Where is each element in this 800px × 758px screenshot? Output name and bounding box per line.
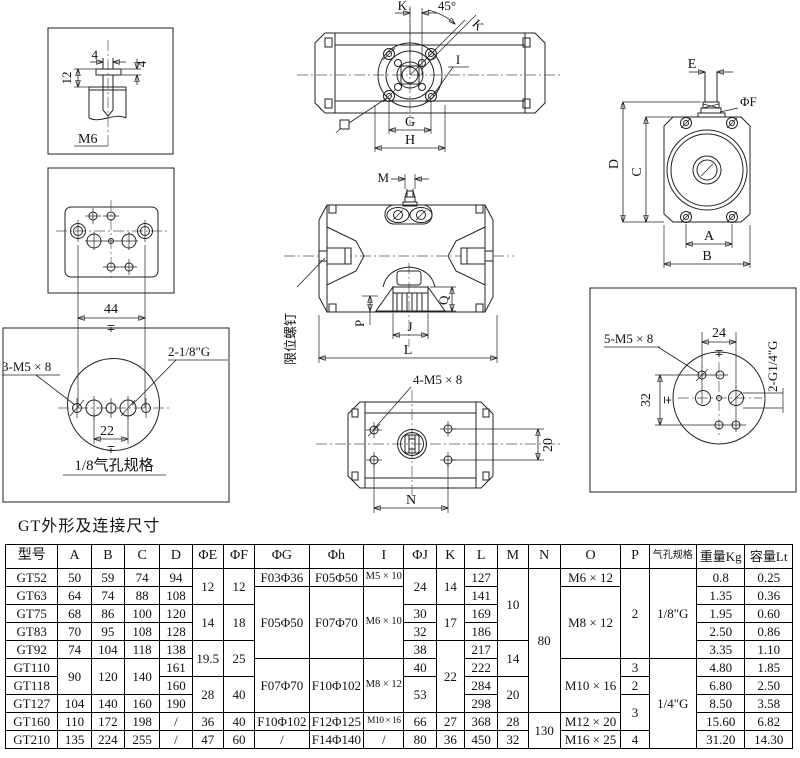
table-cell: M6 × 12 xyxy=(560,569,621,587)
angle-45: 45° K xyxy=(410,0,487,75)
table-cell: 47 xyxy=(192,731,223,749)
table-cell: 128 xyxy=(160,623,192,641)
table-cell: 298 xyxy=(464,695,497,713)
table-cell: 12 xyxy=(192,569,223,605)
table-body: GT52505974941212F03Φ36F05Φ50M5 × 1024141… xyxy=(6,569,793,749)
table-cell: M10 × 16 xyxy=(560,659,621,713)
table-cell: 3.58 xyxy=(745,695,793,713)
table-cell: F14Φ140 xyxy=(309,731,363,749)
table-cell: 104 xyxy=(58,695,91,713)
table-row: GT11090120140161F07Φ70F10Φ102M8 × 124022… xyxy=(6,659,793,677)
dim-label: Q xyxy=(436,295,451,305)
table-cell: F10Φ102 xyxy=(309,659,363,713)
table-cell: F10Φ102 xyxy=(255,713,309,731)
column-header: M xyxy=(498,545,528,569)
table-cell: 40 xyxy=(223,677,254,713)
table-cell: 8.50 xyxy=(697,695,745,713)
table-cell: 53 xyxy=(404,677,436,713)
top-air-ports xyxy=(385,205,432,224)
tolerance-symbol: ∓ xyxy=(662,395,674,404)
screw-label: 4-M5 × 8 xyxy=(413,372,462,387)
table-cell: F07Φ70 xyxy=(255,659,309,713)
dim-label: P xyxy=(352,320,367,327)
table-cell: 140 xyxy=(125,659,160,695)
dim-label: ΦF xyxy=(740,94,757,109)
tolerance-symbol: ∓ xyxy=(106,444,115,456)
table-cell: 88 xyxy=(125,587,160,605)
dim-22: 22 ∓ xyxy=(94,418,128,456)
table-cell: 80 xyxy=(404,731,436,749)
table-cell: 186 xyxy=(464,623,497,641)
table-cell: 20 xyxy=(498,677,528,713)
table-cell: 31.20 xyxy=(697,731,745,749)
body-outline xyxy=(664,117,750,223)
table-cell: 4.80 xyxy=(697,659,745,677)
actuator-front-view-drawing: M 限位螺钉 xyxy=(278,165,568,370)
table-cell: 161 xyxy=(160,659,192,677)
column-header: P xyxy=(621,545,649,569)
table-cell: F12Φ125 xyxy=(309,713,363,731)
dim-label: G xyxy=(405,115,415,130)
table-cell: 108 xyxy=(160,587,192,605)
table-cell: 74 xyxy=(91,587,124,605)
table-cell: / xyxy=(255,731,309,749)
table-cell: 224 xyxy=(91,731,124,749)
table-cell: F07Φ70 xyxy=(309,587,363,659)
table-cell: 2.50 xyxy=(745,677,793,695)
port-label: 2-1/8"G xyxy=(168,344,210,359)
limit-screw-label: 限位螺钉 xyxy=(283,313,298,365)
table-cell: 160 xyxy=(125,695,160,713)
dim-j: J xyxy=(393,313,428,339)
table-cell: 1/4"G xyxy=(649,659,696,749)
table-cell: 190 xyxy=(160,695,192,713)
tolerance-symbol: ∓ xyxy=(106,323,115,335)
table-cell: 6.80 xyxy=(697,677,745,695)
dim-label: C xyxy=(630,167,645,176)
dim-label: J xyxy=(407,319,412,334)
table-cell: 32 xyxy=(498,731,528,749)
table-cell: 3 xyxy=(621,695,649,731)
table-cell: F03Φ36 xyxy=(255,569,309,587)
dim-label: N xyxy=(406,493,416,508)
tolerance-symbol: ∓ xyxy=(714,348,723,360)
table-cell: 140 xyxy=(91,695,124,713)
column-header: K xyxy=(436,545,464,569)
table-cell: 74 xyxy=(125,569,160,587)
table-cell: 3 xyxy=(621,659,649,677)
table-cell: 40 xyxy=(223,713,254,731)
dim-label: K xyxy=(398,0,408,13)
table-cell: 50 xyxy=(58,569,91,587)
port-callout-g14: 2-G1/4"G xyxy=(743,340,783,413)
port-circle-14-drawing: 5-M5 × 8 24 ∓ 32 ∓ 2-G1/4"G xyxy=(580,280,800,508)
screw-callout-3m5: 3-M5 × 8 xyxy=(2,359,75,405)
table-cell: 38 xyxy=(404,641,436,659)
table-cell: 198 xyxy=(125,713,160,731)
dim-label: 22 xyxy=(100,424,114,439)
table-cell: 22 xyxy=(436,641,464,713)
actuator-bottom-view-drawing: 4-M5 × 8 20 N xyxy=(316,368,566,518)
table-cell: 68 xyxy=(58,605,91,623)
plate-box-border xyxy=(48,168,174,293)
table-cell: 108 xyxy=(125,623,160,641)
table-cell: 130 xyxy=(528,713,560,749)
dim-label: H xyxy=(405,133,415,148)
table-cell: 4 xyxy=(621,731,649,749)
table-cell: 94 xyxy=(160,569,192,587)
table-cell: 36 xyxy=(436,731,464,749)
table-cell: 1/8"G xyxy=(649,569,696,659)
table-cell: M5 × 10 xyxy=(364,569,404,587)
table-cell: 12 xyxy=(223,569,254,605)
dim-20: 20 xyxy=(452,429,556,460)
column-header: ΦF xyxy=(223,545,254,569)
table-cell: 36 xyxy=(192,713,223,731)
top-nipple xyxy=(403,189,417,206)
model-cell: GT160 xyxy=(6,713,58,731)
dim-label: 20 xyxy=(541,438,556,452)
table-cell: 24 xyxy=(404,569,436,605)
model-cell: GT210 xyxy=(6,731,58,749)
table-cell: 368 xyxy=(464,713,497,731)
column-header: ΦE xyxy=(192,545,223,569)
table-cell: 15.60 xyxy=(697,713,745,731)
column-header: A xyxy=(58,545,91,569)
table-cell: M12 × 20 xyxy=(560,713,621,731)
limit-screw-right xyxy=(448,227,493,285)
column-header: Φh xyxy=(309,545,363,569)
model-cell: GT118 xyxy=(6,677,58,695)
caption-text: 1/8气孔规格 xyxy=(74,457,153,474)
table-cell: 120 xyxy=(160,605,192,623)
column-header: O xyxy=(560,545,621,569)
model-cell: GT83 xyxy=(6,623,58,641)
datasheet-page: 4 4 12 M6 xyxy=(0,0,800,758)
column-header: B xyxy=(91,545,124,569)
table-cell: 14 xyxy=(436,569,464,605)
table-cell: 169 xyxy=(464,605,497,623)
dim-label: 24 xyxy=(712,326,726,341)
table-cell: 25 xyxy=(223,641,254,677)
table-cell: 160 xyxy=(160,677,192,695)
port-circle-face xyxy=(673,352,765,444)
screw-label: 5-M5 × 8 xyxy=(604,331,653,346)
table-cell: 32 xyxy=(404,623,436,641)
table-cell: 3.35 xyxy=(697,641,745,659)
table-cell: 255 xyxy=(125,731,160,749)
table-cell: 10 xyxy=(498,569,528,641)
angle-label: 45° xyxy=(438,0,456,13)
dim-label: L xyxy=(404,343,413,358)
table-cell: 127 xyxy=(464,569,497,587)
table-cell: M6 × 10 xyxy=(364,587,404,659)
table-cell: M16 × 25 xyxy=(560,731,621,749)
dim-a: A xyxy=(686,224,732,248)
dim-depth: 12 xyxy=(59,69,96,87)
table-cell: 27 xyxy=(436,713,464,731)
table-cell: 95 xyxy=(91,623,124,641)
model-cell: GT63 xyxy=(6,587,58,605)
dim-label: B xyxy=(702,249,711,264)
table-cell: 172 xyxy=(91,713,124,731)
port-label: 2-G1/4"G xyxy=(765,340,780,392)
model-cell: GT52 xyxy=(6,569,58,587)
dim-label: A xyxy=(704,229,715,244)
table-cell: 138 xyxy=(160,641,192,659)
column-header: ΦJ xyxy=(404,545,436,569)
column-header: D xyxy=(160,545,192,569)
dim-m: M xyxy=(377,170,429,189)
dim-label: 44 xyxy=(104,302,118,317)
table-cell: 118 xyxy=(125,641,160,659)
actuator-top-view-drawing: K 45° K I G H xyxy=(295,0,565,168)
table-cell: 0.60 xyxy=(745,605,793,623)
table-cell: 17 xyxy=(436,605,464,641)
table-cell: 18 xyxy=(223,605,254,641)
dim-label: 32 xyxy=(639,393,654,407)
detail-border xyxy=(48,28,173,154)
actuator-end-view-drawing: E ΦF D C xyxy=(593,48,800,288)
table-cell: 135 xyxy=(58,731,91,749)
table-cell: 120 xyxy=(91,659,124,695)
table-header-row: 型号ABCDΦEΦFΦGΦhIΦJKLMNOP气孔规格重量Kg容量Lt xyxy=(6,545,793,569)
model-cell: GT75 xyxy=(6,605,58,623)
dim-label: D xyxy=(607,159,622,169)
table-cell: 40 xyxy=(404,659,436,677)
dim-44: 44 ∓ xyxy=(78,245,145,408)
mounting-holes xyxy=(366,421,456,468)
column-header: 气孔规格 xyxy=(649,545,696,569)
model-cell: GT127 xyxy=(6,695,58,713)
table-cell: 217 xyxy=(464,641,497,659)
table-cell: 90 xyxy=(58,659,91,695)
dim-label: 4 xyxy=(92,47,99,62)
thread-callout: M6 xyxy=(74,132,108,147)
model-cell: GT110 xyxy=(6,659,58,677)
table-cell: 6.82 xyxy=(745,713,793,731)
column-header: 型号 xyxy=(6,545,58,569)
table-cell: 19.5 xyxy=(192,641,223,677)
table-cell: M10 × 16 xyxy=(364,713,404,731)
table-cell: 70 xyxy=(58,623,91,641)
table-cell: 141 xyxy=(464,587,497,605)
table-cell: 30 xyxy=(404,605,436,623)
table-cell: / xyxy=(160,713,192,731)
screw-callout-4m5: 4-M5 × 8 xyxy=(374,372,462,429)
table-cell: 1.35 xyxy=(697,587,745,605)
table-cell: 0.86 xyxy=(745,623,793,641)
table-cell: F05Φ50 xyxy=(255,587,309,659)
table-cell: 64 xyxy=(58,587,91,605)
port-spec-caption: 1/8气孔规格 xyxy=(63,457,166,475)
column-header: C xyxy=(125,545,160,569)
table-cell: 2 xyxy=(621,677,649,695)
table-cell: 28 xyxy=(498,713,528,731)
table-cell: 60 xyxy=(223,731,254,749)
dim-label: 12 xyxy=(59,72,74,85)
table-cell: 110 xyxy=(58,713,91,731)
table-cell: 284 xyxy=(464,677,497,695)
column-header: ΦG xyxy=(255,545,309,569)
dim-label: E xyxy=(688,57,697,72)
thread-label: M6 xyxy=(78,132,97,147)
dim-d: D xyxy=(607,102,701,222)
spec-table: 型号ABCDΦEΦFΦGΦhIΦJKLMNOP气孔规格重量Kg容量Lt GT52… xyxy=(5,544,793,749)
mounting-plate-face xyxy=(56,200,168,278)
bottom-shaft-assembly xyxy=(376,267,445,311)
table-cell: 80 xyxy=(528,569,560,713)
port-callout-18g: 2-1/8"G xyxy=(132,344,228,405)
dim-tab-height: 4 xyxy=(121,59,149,85)
column-header: 重量Kg xyxy=(697,545,745,569)
table-cell: 0.36 xyxy=(745,587,793,605)
stem-and-nut xyxy=(698,72,725,117)
table-row: GT52505974941212F03Φ36F05Φ50M5 × 1024141… xyxy=(6,569,793,587)
screw-label: 3-M5 × 8 xyxy=(2,359,51,374)
table-cell: 66 xyxy=(404,713,436,731)
table-cell: / xyxy=(364,731,404,749)
table-cell: / xyxy=(160,731,192,749)
datum-flag xyxy=(336,98,387,133)
column-header: L xyxy=(464,545,497,569)
mounting-plate-and-port-drawing: 44 ∓ 3-M5 × 8 2-1/8"G xyxy=(0,160,240,512)
table-cell: 14.30 xyxy=(745,731,793,749)
table-cell: 14 xyxy=(498,641,528,677)
dim-label: M xyxy=(377,170,389,185)
table-cell: 222 xyxy=(464,659,497,677)
dim-f-callout: ΦF xyxy=(720,94,757,112)
body-outline xyxy=(348,402,493,488)
table-cell: 14 xyxy=(192,605,223,641)
model-cell: GT92 xyxy=(6,641,58,659)
shaft-slot-detail-drawing: 4 4 12 M6 xyxy=(40,18,235,158)
table-cell: 2 xyxy=(621,569,649,659)
table-cell: M8 × 12 xyxy=(364,659,404,713)
table-cell: 1.95 xyxy=(697,605,745,623)
limit-screw-left xyxy=(319,227,364,285)
table-cell: 1.10 xyxy=(745,641,793,659)
table-cell: 450 xyxy=(464,731,497,749)
dim-label: 4 xyxy=(134,60,149,67)
table-cell: 2.50 xyxy=(697,623,745,641)
column-header: I xyxy=(364,545,404,569)
dim-32: 32 ∓ xyxy=(639,375,710,425)
column-header: 容量Lt xyxy=(745,545,793,569)
table-cell: F05Φ50 xyxy=(309,569,363,587)
table-cell: 0.25 xyxy=(745,569,793,587)
table-cell: 1.85 xyxy=(745,659,793,677)
label-i: I xyxy=(456,52,460,67)
table-cell: 86 xyxy=(91,605,124,623)
table-cell: 74 xyxy=(58,641,91,659)
table-cell: 100 xyxy=(125,605,160,623)
dim-e: E xyxy=(688,57,733,72)
table-cell: 0.8 xyxy=(697,569,745,587)
sheet-caption: GT外形及连接尺寸 xyxy=(18,512,160,536)
table-cell: 104 xyxy=(91,641,124,659)
column-header: N xyxy=(528,545,560,569)
table-cell: M8 × 12 xyxy=(560,587,621,659)
table-cell: 59 xyxy=(91,569,124,587)
shaft-outline xyxy=(89,58,126,120)
table-cell: 28 xyxy=(192,677,223,713)
